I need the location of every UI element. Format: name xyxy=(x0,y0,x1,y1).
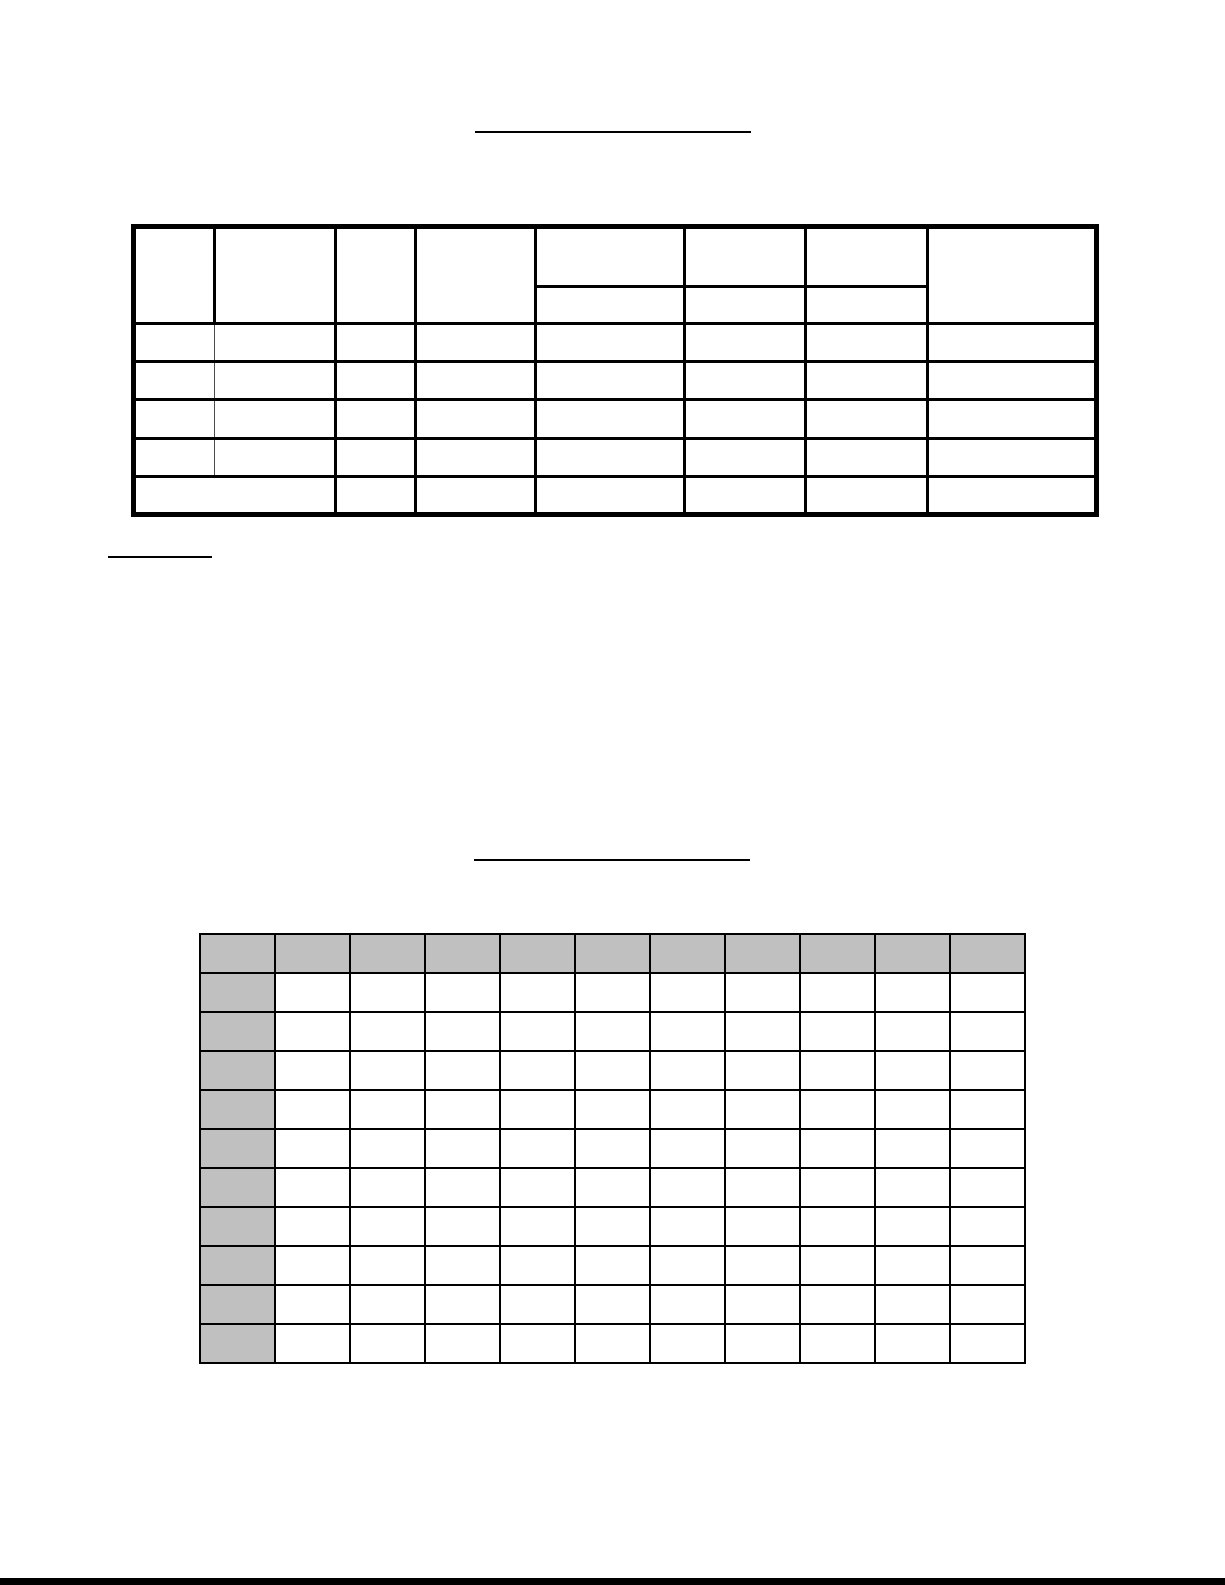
grid-row-header-cell xyxy=(200,1129,275,1168)
summary-header-cell xyxy=(336,227,416,324)
summary-header-cell xyxy=(928,227,1097,324)
grid-cell xyxy=(725,1207,800,1246)
grid-cell xyxy=(350,1168,425,1207)
grid-cell xyxy=(575,1246,650,1285)
grid-cell xyxy=(350,1129,425,1168)
grid-cell xyxy=(875,1246,950,1285)
grid-cell xyxy=(575,1051,650,1090)
summary-header-cell xyxy=(685,227,806,287)
grid-row-header-cell xyxy=(200,1246,275,1285)
summary-data-cell xyxy=(685,438,806,476)
grid-cell xyxy=(950,1246,1025,1285)
grid-row-header-cell xyxy=(200,1051,275,1090)
grid-cell xyxy=(950,1168,1025,1207)
grid-cell xyxy=(350,973,425,1012)
grid-cell xyxy=(725,1129,800,1168)
grid-cell xyxy=(275,1285,350,1324)
grid-cell xyxy=(275,1051,350,1090)
title-blank-underline xyxy=(475,131,751,133)
grid-cell xyxy=(500,1090,575,1129)
summary-data-cell xyxy=(928,324,1097,362)
grid-row-header-cell xyxy=(200,973,275,1012)
summary-subheader-cell xyxy=(685,286,806,323)
grid-cell xyxy=(425,1285,500,1324)
grid-cell xyxy=(425,1168,500,1207)
summary-data-cell xyxy=(536,400,685,438)
summary-data-cell xyxy=(134,324,215,362)
grid-cell xyxy=(950,973,1025,1012)
summary-footer-cell xyxy=(134,476,336,514)
summary-data-cell xyxy=(806,324,928,362)
grid-header-cell xyxy=(275,934,350,973)
grid-cell xyxy=(800,1129,875,1168)
grid-cell xyxy=(425,1246,500,1285)
grid-row-header-cell xyxy=(200,1285,275,1324)
summary-data-cell xyxy=(928,400,1097,438)
grid-cell xyxy=(950,1207,1025,1246)
summary-data-cell xyxy=(806,438,928,476)
grid-cell xyxy=(350,1285,425,1324)
grid-cell xyxy=(275,973,350,1012)
summary-table xyxy=(131,224,1099,517)
grid-cell xyxy=(875,1129,950,1168)
grid-header-cell xyxy=(425,934,500,973)
summary-header-cell xyxy=(215,227,336,324)
grid-cell xyxy=(650,1285,725,1324)
grid-cell xyxy=(950,1129,1025,1168)
grid-cell xyxy=(800,1090,875,1129)
grid-cell xyxy=(575,1012,650,1051)
grid-table xyxy=(199,933,1026,1364)
grid-cell xyxy=(875,973,950,1012)
grid-header-cell xyxy=(875,934,950,973)
summary-data-cell xyxy=(134,400,215,438)
grid-cell xyxy=(275,1129,350,1168)
grid-cell xyxy=(425,1012,500,1051)
grid-cell xyxy=(425,1324,500,1363)
summary-data-cell xyxy=(336,438,416,476)
grid-header-cell xyxy=(350,934,425,973)
summary-subheader-cell xyxy=(536,286,685,323)
summary-data-cell xyxy=(336,324,416,362)
grid-cell xyxy=(725,1051,800,1090)
grid-header-cell xyxy=(650,934,725,973)
grid-cell xyxy=(725,973,800,1012)
grid-cell xyxy=(575,1207,650,1246)
grid-cell xyxy=(725,1324,800,1363)
summary-data-cell xyxy=(416,400,536,438)
grid-cell xyxy=(875,1168,950,1207)
grid-cell xyxy=(875,1051,950,1090)
summary-header-cell xyxy=(806,227,928,287)
grid-cell xyxy=(875,1324,950,1363)
summary-data-cell xyxy=(928,362,1097,400)
summary-data-cell xyxy=(416,324,536,362)
summary-data-cell xyxy=(685,400,806,438)
grid-cell xyxy=(425,1129,500,1168)
grid-row-header-cell xyxy=(200,1207,275,1246)
grid-cell xyxy=(500,1168,575,1207)
grid-cell xyxy=(575,1168,650,1207)
summary-footer-cell xyxy=(416,476,536,514)
summary-table-body xyxy=(134,227,1097,515)
grid-header-cell xyxy=(200,934,275,973)
summary-data-cell xyxy=(685,362,806,400)
grid-cell xyxy=(800,1246,875,1285)
grid-cell xyxy=(650,1168,725,1207)
grid-row-header-cell xyxy=(200,1168,275,1207)
grid-row-header-cell xyxy=(200,1324,275,1363)
grid-cell xyxy=(650,1051,725,1090)
grid-cell xyxy=(350,1207,425,1246)
summary-data-cell xyxy=(215,362,336,400)
grid-cell xyxy=(800,1207,875,1246)
grid-cell xyxy=(500,1324,575,1363)
grid-cell xyxy=(500,1246,575,1285)
summary-data-cell xyxy=(416,362,536,400)
grid-header-cell xyxy=(725,934,800,973)
summary-footer-cell xyxy=(536,476,685,514)
summary-data-cell xyxy=(336,362,416,400)
grid-cell xyxy=(800,1012,875,1051)
grid-cell xyxy=(650,1324,725,1363)
grid-cell xyxy=(650,1129,725,1168)
grid-cell xyxy=(875,1285,950,1324)
grid-cell xyxy=(500,973,575,1012)
grid-cell xyxy=(575,1129,650,1168)
grid-cell xyxy=(950,1012,1025,1051)
grid-cell xyxy=(425,1207,500,1246)
grid-cell xyxy=(425,1051,500,1090)
summary-data-cell xyxy=(536,362,685,400)
grid-cell xyxy=(575,973,650,1012)
grid-cell xyxy=(650,1090,725,1129)
summary-header-cell xyxy=(416,227,536,324)
grid-cell xyxy=(725,1246,800,1285)
summary-data-cell xyxy=(416,438,536,476)
grid-cell xyxy=(350,1246,425,1285)
summary-data-cell xyxy=(215,324,336,362)
notes-blank-underline xyxy=(108,556,212,558)
grid-cell xyxy=(575,1090,650,1129)
grid-cell xyxy=(275,1207,350,1246)
summary-data-cell xyxy=(134,362,215,400)
grid-cell xyxy=(650,1012,725,1051)
grid-cell xyxy=(500,1129,575,1168)
grid-cell xyxy=(500,1207,575,1246)
summary-footer-cell xyxy=(685,476,806,514)
grid-row-header-cell xyxy=(200,1012,275,1051)
grid-cell xyxy=(950,1090,1025,1129)
grid-title-blank-underline xyxy=(474,859,750,861)
grid-header-cell xyxy=(800,934,875,973)
grid-cell xyxy=(350,1012,425,1051)
grid-cell xyxy=(725,1168,800,1207)
grid-cell xyxy=(800,1324,875,1363)
summary-data-cell xyxy=(134,438,215,476)
summary-subheader-cell xyxy=(806,286,928,323)
grid-header-cell xyxy=(500,934,575,973)
grid-header-cell xyxy=(950,934,1025,973)
grid-cell xyxy=(275,1246,350,1285)
grid-cell xyxy=(500,1051,575,1090)
summary-data-cell xyxy=(536,324,685,362)
grid-cell xyxy=(500,1285,575,1324)
grid-cell xyxy=(425,973,500,1012)
grid-cell xyxy=(425,1090,500,1129)
summary-data-cell xyxy=(215,438,336,476)
grid-cell xyxy=(500,1012,575,1051)
grid-cell xyxy=(275,1324,350,1363)
grid-cell xyxy=(650,1207,725,1246)
grid-cell xyxy=(725,1285,800,1324)
summary-data-cell xyxy=(806,400,928,438)
grid-cell xyxy=(875,1012,950,1051)
grid-row-header-cell xyxy=(200,1090,275,1129)
grid-cell xyxy=(350,1324,425,1363)
grid-cell xyxy=(950,1285,1025,1324)
grid-cell xyxy=(575,1285,650,1324)
grid-table-body xyxy=(200,934,1025,1363)
summary-data-cell xyxy=(215,400,336,438)
grid-cell xyxy=(725,1012,800,1051)
page-bottom-edge xyxy=(0,1578,1225,1585)
grid-cell xyxy=(275,1090,350,1129)
grid-cell xyxy=(800,1285,875,1324)
summary-header-cell xyxy=(536,227,685,287)
grid-cell xyxy=(950,1324,1025,1363)
grid-cell xyxy=(800,973,875,1012)
grid-cell xyxy=(650,1246,725,1285)
summary-footer-cell xyxy=(336,476,416,514)
grid-cell xyxy=(350,1051,425,1090)
grid-cell xyxy=(650,973,725,1012)
summary-header-cell xyxy=(134,227,215,324)
grid-cell xyxy=(875,1090,950,1129)
summary-data-cell xyxy=(336,400,416,438)
grid-cell xyxy=(275,1012,350,1051)
summary-data-cell xyxy=(536,438,685,476)
summary-data-cell xyxy=(928,438,1097,476)
grid-cell xyxy=(800,1051,875,1090)
grid-cell xyxy=(950,1051,1025,1090)
grid-cell xyxy=(350,1090,425,1129)
grid-cell xyxy=(575,1324,650,1363)
summary-footer-cell xyxy=(806,476,928,514)
grid-cell xyxy=(275,1168,350,1207)
grid-cell xyxy=(725,1090,800,1129)
summary-data-cell xyxy=(685,324,806,362)
grid-cell xyxy=(875,1207,950,1246)
summary-data-cell xyxy=(806,362,928,400)
summary-footer-cell xyxy=(928,476,1097,514)
grid-cell xyxy=(800,1168,875,1207)
grid-header-cell xyxy=(575,934,650,973)
